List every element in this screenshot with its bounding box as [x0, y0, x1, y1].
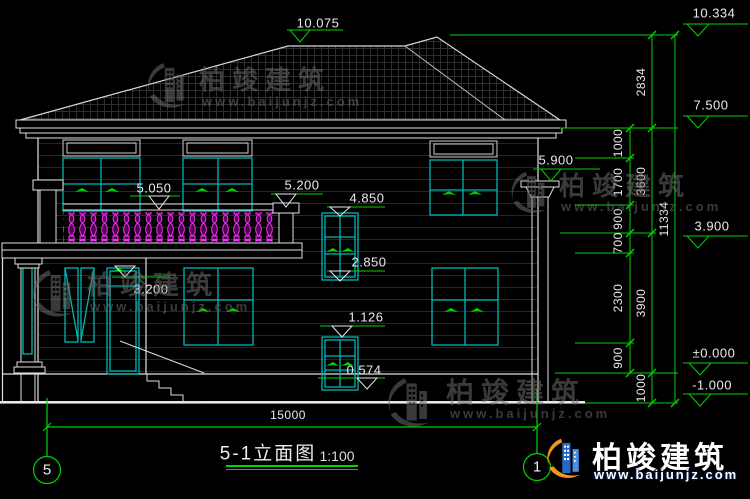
baijun-logo-url: www.baijunjz.com: [594, 467, 738, 482]
elevation-drawing-canvas: 10.075 10.334 7.500 3.900 ±0.000 -1.000 …: [0, 0, 750, 499]
elevation-label-win-a-sill: 2.850: [351, 255, 386, 270]
watermark-url: www.baijunjz.com: [202, 94, 362, 109]
baijun-logo-icon: [543, 426, 587, 490]
watermark-logo-icon: [383, 369, 437, 435]
elevation-label-390: 3.900: [694, 219, 729, 234]
elevation-label-ridge-right: 10.334: [693, 6, 736, 21]
elevation-label-win-b-head: 1.126: [348, 310, 383, 325]
watermark-brand: 柏竣建筑: [559, 166, 691, 203]
dim-seg1: 1000: [611, 129, 625, 158]
elevation-label-rail: 5.050: [136, 181, 171, 196]
elevation-label-eave: 7.500: [693, 98, 728, 113]
watermark-logo-icon: [507, 164, 553, 220]
elevation-label-ground: ±0.000: [693, 346, 736, 361]
dim-total-width: 15000: [270, 408, 306, 422]
balcony-pier-left-cap: [33, 180, 63, 190]
elevation-label-win-a-head: 4.850: [349, 191, 384, 206]
dim-roof-height: 2834: [634, 68, 648, 97]
watermark-brand: 柏竣建筑: [199, 60, 331, 97]
elevation-label-ridge-left: 10.075: [297, 16, 340, 31]
dim-seg5: 2300: [611, 284, 625, 313]
eave-cornice: [16, 120, 566, 138]
watermark-url: www.baijunjz.com: [450, 406, 610, 421]
watermark-url: www.baijunjz.com: [561, 199, 721, 214]
watermark-logo-icon: [143, 54, 193, 116]
dim-seg6: 900: [611, 347, 625, 369]
balcony-slab: [2, 243, 302, 258]
dim-plinth: 1000: [634, 374, 648, 403]
elevation-label-win-b-sill: 0.574: [346, 363, 381, 378]
balcony-balusters: [63, 212, 273, 242]
drawing-scale: 1:100: [319, 448, 354, 464]
dim-lower-floor: 3900: [634, 289, 648, 318]
watermark-brand: 柏竣建筑: [87, 265, 219, 302]
watermark-brand: 柏竣建筑: [446, 371, 586, 411]
dim-seg4: 700: [611, 232, 625, 254]
balcony-pier-right: [279, 213, 293, 247]
watermark-logo-icon: [28, 261, 80, 325]
elevation-label-site: -1.000: [692, 378, 732, 393]
elevation-label-pier: 5.200: [284, 178, 319, 193]
grid-bubble-5-label: 5: [43, 462, 51, 479]
title-underline-1: [226, 465, 358, 467]
balcony-pier-right-cap: [273, 203, 299, 213]
drawing-title: 5-1立面图: [220, 439, 316, 466]
balcony-pier-left: [40, 190, 56, 244]
title-underline-2: [226, 469, 358, 470]
grid-bubble-1-label: 1: [533, 459, 541, 476]
watermark-url: www.baijunjz.com: [90, 299, 250, 314]
